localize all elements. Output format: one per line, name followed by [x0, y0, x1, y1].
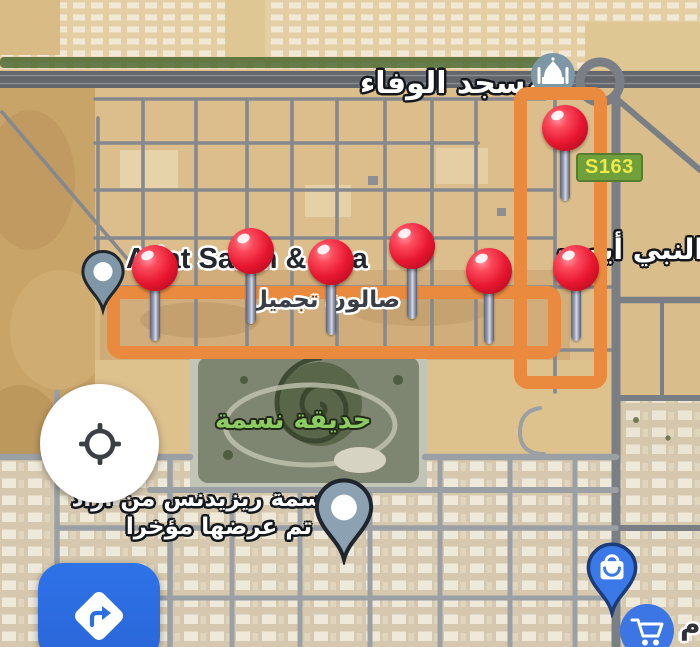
- my-location-button[interactable]: [40, 384, 159, 503]
- crosshair-icon: [77, 421, 123, 467]
- map-pin-icon: [313, 478, 375, 565]
- map-pin-icon: [80, 247, 126, 317]
- red-map-pin[interactable]: [308, 239, 354, 339]
- residence-status-label: تم عرضها مؤخرا: [126, 514, 312, 540]
- directions-button[interactable]: [38, 563, 160, 647]
- salon-poi-pin[interactable]: [80, 247, 126, 321]
- park-label: حديقة نسمة: [215, 405, 371, 435]
- map-canvas[interactable]: مسجد الوفاء النبي أيوب S163 Adat Salon &…: [0, 0, 700, 647]
- red-map-pin[interactable]: [542, 105, 588, 205]
- red-map-pin[interactable]: [466, 248, 512, 348]
- shopping-cart-icon: [620, 604, 674, 647]
- edge-label-fragment: م: [680, 608, 700, 641]
- residence-poi-pin[interactable]: [313, 478, 375, 569]
- cart-poi[interactable]: [620, 604, 674, 647]
- diamond-turn-right-icon: [72, 589, 126, 643]
- red-map-pin[interactable]: [389, 223, 435, 323]
- red-map-pin[interactable]: [132, 245, 178, 345]
- red-map-pin[interactable]: [228, 228, 274, 328]
- red-map-pin[interactable]: [553, 245, 599, 345]
